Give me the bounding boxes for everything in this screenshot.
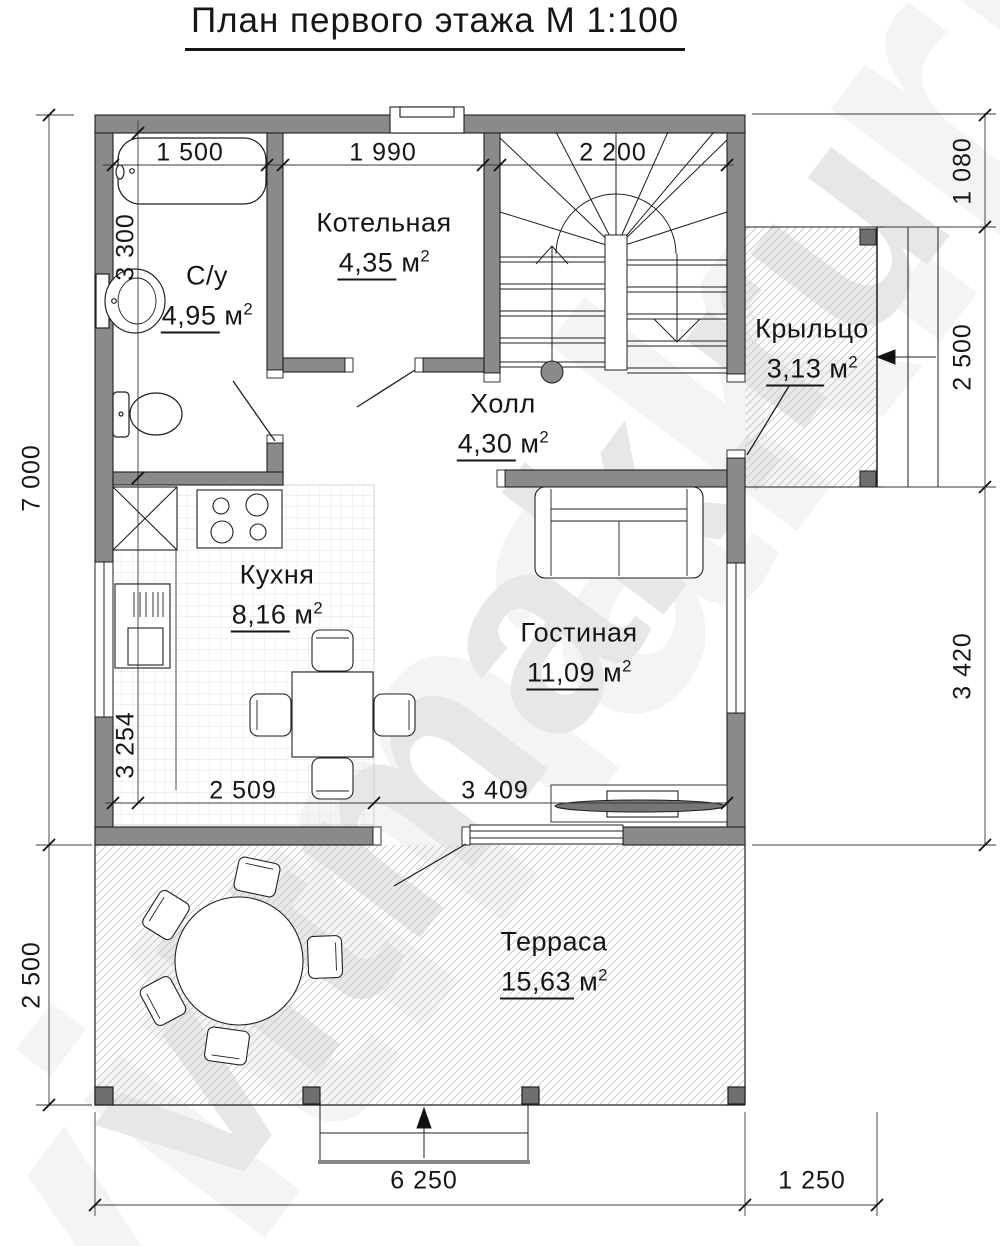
porch-column — [860, 471, 876, 487]
dim-house-depth: 7 000 — [18, 444, 47, 512]
tv — [555, 800, 725, 812]
dim-top-stairs: 2 200 — [579, 139, 647, 168]
wall-east-lower — [727, 713, 745, 845]
room-label-kitchen: Кухня 8,16м2 — [231, 559, 323, 632]
terrace-steps — [318, 1105, 530, 1162]
chimney-block — [390, 107, 464, 133]
wall-west-lower — [95, 717, 113, 845]
terrace-column — [522, 1087, 539, 1104]
wall-south-left — [95, 827, 373, 845]
room-label-boiler: Котельная 4,35м2 — [316, 207, 451, 280]
wall-east-upper — [727, 133, 745, 374]
dim-top-bathroom: 1 500 — [156, 139, 224, 168]
room-area: 4,95м2 — [161, 293, 253, 333]
staircase — [500, 132, 727, 383]
room-label-bathroom: С/у 4,95м2 — [161, 260, 253, 333]
dim-terrace-depth: 2 500 — [18, 941, 47, 1009]
dim-bathroom-depth: 3 300 — [112, 213, 141, 281]
window-south — [470, 825, 623, 844]
chair — [312, 630, 353, 671]
entry-arrow — [877, 350, 895, 364]
page-title: План первого этажа М 1:100 — [185, 1, 685, 51]
dim-house-width: 6 250 — [390, 1167, 458, 1196]
dim-right-upper: 1 080 — [949, 137, 978, 205]
wall-south-right — [623, 827, 745, 845]
terrace-column — [728, 1087, 745, 1104]
chair — [307, 935, 342, 978]
dim-right-lower: 3 420 — [949, 632, 978, 700]
room-label-terrace: Терраса 15,63м2 — [500, 926, 608, 999]
room-name: Кухня — [231, 559, 323, 592]
porch-column — [860, 229, 876, 245]
round-table — [175, 897, 303, 1025]
chair — [204, 1026, 250, 1066]
room-area: 8,16м2 — [231, 592, 323, 632]
room-name: Крыльцо — [755, 313, 869, 346]
dim-kitchen-depth: 3 254 — [112, 711, 141, 779]
floor-plan-canvas: vitmak.ru vitmak.ru — [0, 0, 1000, 1246]
stair-walkline-start — [541, 361, 563, 383]
dim-kitchen-width: 2 509 — [209, 777, 277, 806]
wall-living-north — [505, 470, 727, 487]
room-name: Гостиная — [520, 617, 637, 650]
floor-plan-drawing — [0, 0, 1000, 1246]
wall-boiler-south-right — [423, 358, 484, 372]
chair — [312, 758, 353, 799]
wall-east-middle — [727, 458, 745, 563]
terrace-column — [95, 1087, 113, 1105]
stove — [197, 490, 282, 548]
dim-living-width: 3 409 — [461, 777, 529, 806]
room-name: С/у — [161, 260, 253, 293]
room-name: Терраса — [500, 926, 608, 959]
room-area: 3,13м2 — [755, 346, 869, 386]
bathroom-door — [233, 381, 275, 441]
room-label-hall: Холл 4,30м2 — [457, 388, 549, 461]
kitchen-table — [292, 672, 373, 757]
room-name: Котельная — [316, 207, 451, 240]
dim-porch-depth: 2 500 — [949, 323, 978, 391]
entry-arrow — [417, 1108, 431, 1128]
wall-west-upper — [95, 133, 113, 562]
room-name: Холл — [457, 388, 549, 421]
wall-stair-west — [484, 133, 500, 373]
boiler-door — [357, 370, 415, 407]
room-label-living: Гостиная 11,09м2 — [520, 617, 637, 690]
room-area: 11,09м2 — [520, 650, 637, 690]
dim-porch-width: 1 250 — [778, 1167, 846, 1196]
room-area: 4,35м2 — [316, 240, 451, 280]
room-area: 15,63м2 — [500, 959, 608, 999]
terrace-column — [303, 1087, 320, 1104]
room-label-porch: Крыльцо 3,13м2 — [755, 313, 869, 386]
dim-top-boiler: 1 990 — [349, 139, 417, 168]
stair-newel-post — [605, 235, 627, 370]
wall-boiler-south-left — [283, 358, 345, 372]
room-area: 4,30м2 — [457, 421, 549, 461]
chair — [250, 694, 291, 736]
